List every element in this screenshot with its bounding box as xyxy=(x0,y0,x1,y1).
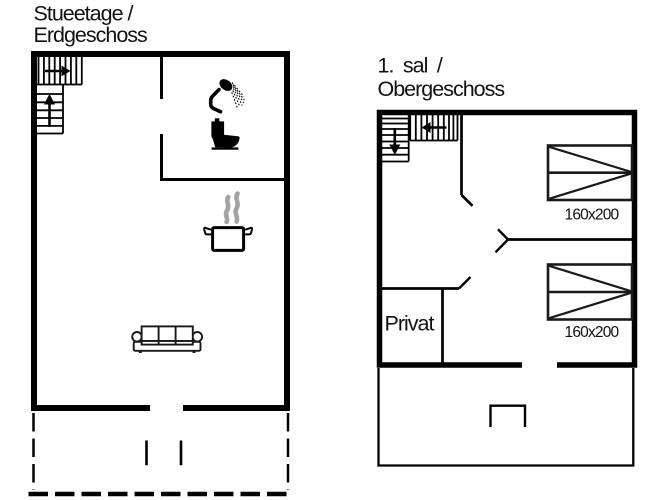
svg-text:1. sal /: 1. sal / xyxy=(378,54,443,78)
svg-text:Privat: Privat xyxy=(385,312,435,336)
svg-text:160x200: 160x200 xyxy=(565,324,620,341)
svg-text:Obergeschoss: Obergeschoss xyxy=(378,77,505,101)
svg-text:Stueetage /: Stueetage / xyxy=(34,1,134,25)
svg-text:160x200: 160x200 xyxy=(565,207,620,224)
svg-text:Erdgeschoss: Erdgeschoss xyxy=(34,23,148,47)
